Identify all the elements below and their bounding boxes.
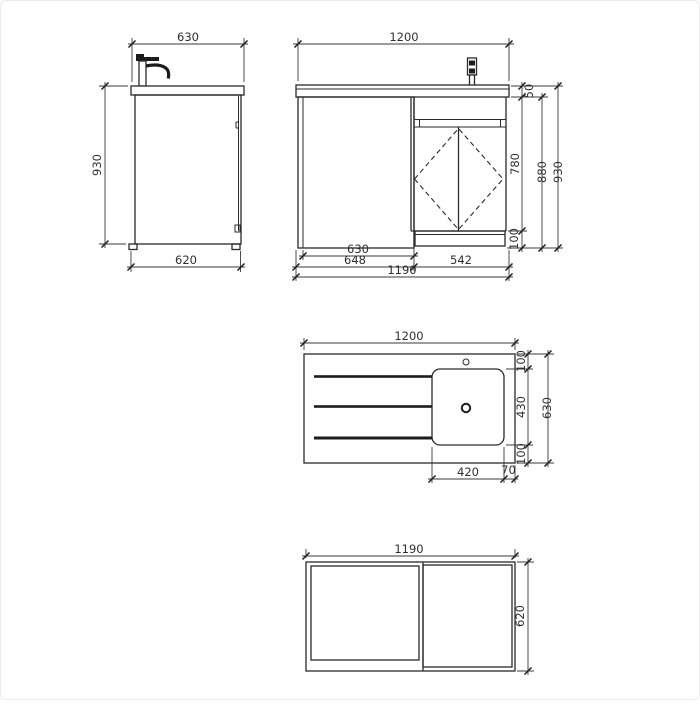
plan-dim-basin-width: 420 70 (428, 447, 519, 483)
plan-drain-icon (462, 404, 470, 412)
front-countertop (296, 85, 509, 97)
front-right-section (411, 97, 506, 246)
side-dim-width-top-label: 630 (177, 30, 199, 44)
plan-dim-basin-depth-label: 430 (514, 396, 528, 418)
side-view: 630 930 620 (90, 30, 248, 272)
side-dim-height: 930 (90, 82, 128, 248)
bottom-dim-depth: 620 (513, 558, 534, 675)
bottom-right-compartment (423, 565, 512, 667)
plan-dim-width-label: 1200 (394, 329, 423, 343)
bottom-dim-width-label: 1190 (394, 542, 423, 556)
plan-dim-right-margin-label: 70 (501, 463, 516, 477)
faucet-side-icon (136, 54, 169, 86)
front-dim-width-bottom-label: 1190 (387, 263, 416, 277)
bottom-view: 1190 620 (302, 542, 534, 675)
bottom-left-compartment (311, 566, 419, 660)
faucet-front-icon (468, 58, 477, 86)
front-dim-carcass-label: 780 (508, 153, 522, 175)
plan-dim-bottom-margin-label: 100 (514, 443, 528, 465)
plan-view: 1200 100 430 100 630 420 70 (300, 329, 554, 483)
front-view: 1200 50 780 100 880 930 630 (292, 30, 565, 281)
front-dim-plinth-label: 100 (507, 228, 521, 250)
plan-dim-top-margin-label: 100 (514, 350, 528, 372)
front-dim-carcass-plus-plinth: 880 (535, 93, 549, 252)
side-foot-right (232, 244, 240, 250)
plan-dim-total-depth: 630 (540, 350, 554, 467)
technical-drawing-canvas: 630 930 620 (1, 1, 700, 701)
front-dim-left-section-label: 648 (344, 253, 366, 267)
front-dim-right-section-label: 542 (450, 253, 472, 267)
side-cabinet-body (135, 95, 241, 244)
front-dim-total-height-label: 930 (551, 161, 565, 183)
front-drawer-divider (414, 120, 506, 128)
front-left-panel (298, 97, 414, 248)
plan-drainer-grooves (314, 375, 432, 439)
side-dim-width-bottom: 620 (127, 251, 245, 272)
bottom-dim-depth-label: 620 (513, 605, 527, 627)
plan-dim-total-depth-label: 630 (540, 397, 554, 419)
front-dim-counter-label: 50 (522, 84, 536, 99)
front-dim-width-top: 1200 (293, 30, 514, 81)
plan-dim-basin-width-label: 420 (457, 465, 479, 479)
bottom-outline (306, 562, 515, 671)
front-dim-width-bottom: 1190 (292, 263, 513, 281)
bottom-dim-width: 1190 (302, 542, 519, 560)
front-dim-carcass-plus-plinth-label: 880 (535, 161, 549, 183)
plan-counter-outline (304, 354, 515, 463)
side-door-stop (235, 225, 240, 232)
front-dim-width-top-label: 1200 (389, 30, 418, 44)
side-foot-left (129, 244, 137, 250)
side-countertop (131, 86, 244, 95)
front-plinth (415, 231, 505, 246)
side-dim-width-bottom-label: 620 (175, 253, 197, 267)
plan-faucet-hole-icon (463, 359, 469, 365)
front-dim-total-height: 930 (551, 82, 565, 252)
plan-dim-width: 1200 (300, 329, 519, 350)
side-dim-height-label: 930 (90, 154, 104, 176)
side-door-edge (236, 96, 239, 231)
technical-drawing-page: 630 930 620 (0, 0, 700, 700)
plan-basin (432, 369, 504, 445)
